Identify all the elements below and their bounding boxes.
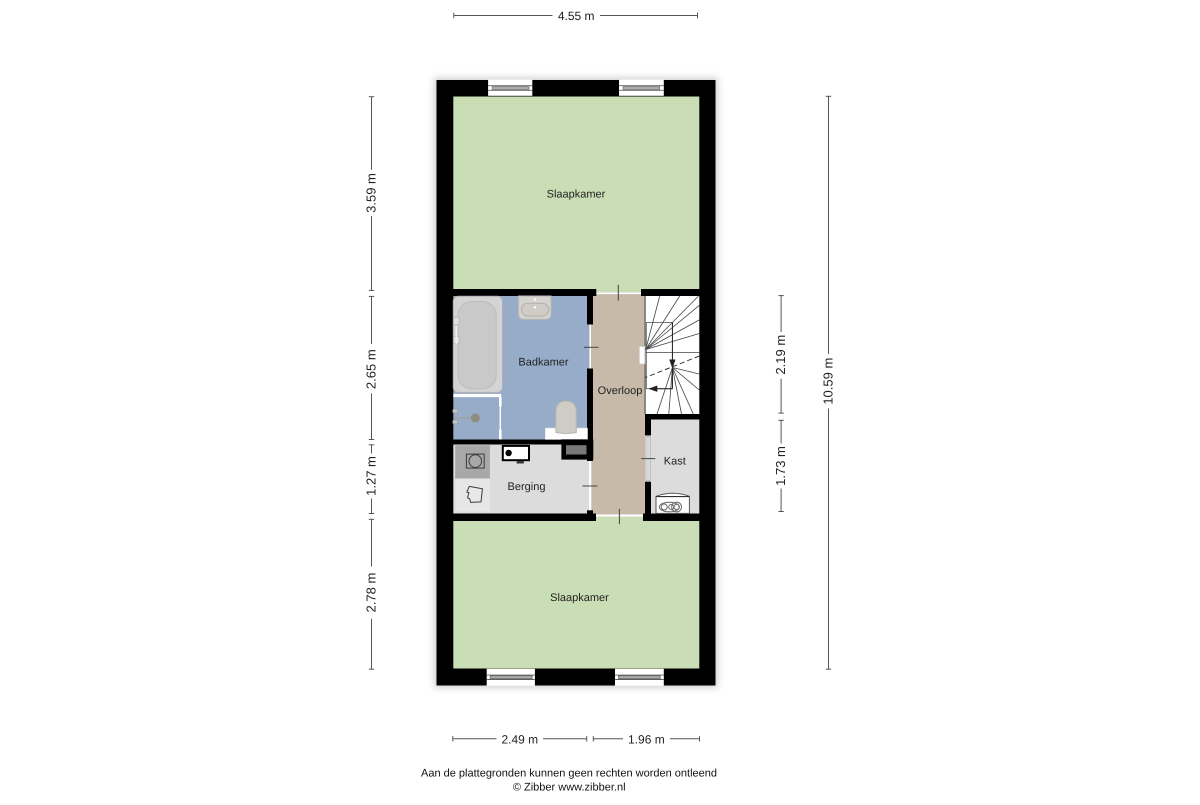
svg-text:2.78 m: 2.78 m xyxy=(364,573,379,613)
svg-text:1.96 m: 1.96 m xyxy=(628,732,665,746)
svg-text:10.59 m: 10.59 m xyxy=(821,358,836,405)
svg-text:Slaapkamer: Slaapkamer xyxy=(547,189,606,201)
svg-text:Berging: Berging xyxy=(508,481,546,493)
svg-text:1.73 m: 1.73 m xyxy=(773,446,788,486)
svg-text:Aan de plattegronden kunnen ge: Aan de plattegronden kunnen geen rechten… xyxy=(421,767,717,779)
svg-text:3.59 m: 3.59 m xyxy=(364,173,379,213)
svg-text:4.55 m: 4.55 m xyxy=(558,9,595,23)
svg-text:Badkamer: Badkamer xyxy=(518,357,568,369)
svg-text:Kast: Kast xyxy=(664,456,686,468)
svg-text:Slaapkamer: Slaapkamer xyxy=(550,592,609,604)
svg-text:2.19 m: 2.19 m xyxy=(773,335,788,375)
svg-text:© Zibber www.zibber.nl: © Zibber www.zibber.nl xyxy=(513,781,626,793)
svg-text:Overloop: Overloop xyxy=(598,385,643,397)
svg-text:2.49 m: 2.49 m xyxy=(501,732,538,746)
svg-text:1.27 m: 1.27 m xyxy=(364,456,379,496)
svg-text:2.65 m: 2.65 m xyxy=(364,349,379,389)
